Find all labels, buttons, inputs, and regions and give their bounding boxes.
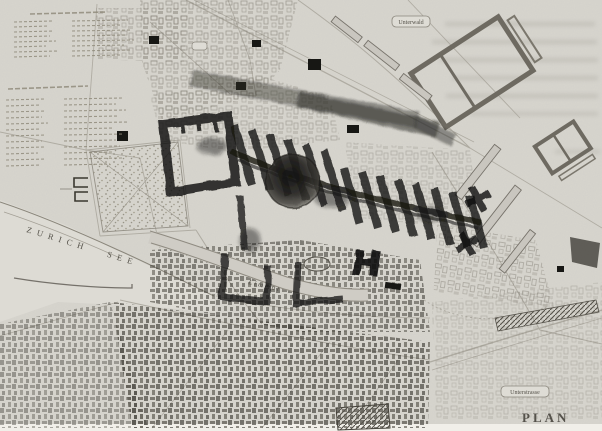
label-box-top-right-text: Unterwald (398, 20, 423, 26)
small-empty-label-box (192, 42, 207, 50)
hatched-palace-building (336, 404, 390, 430)
label-box-bottom-right: Unterstrasse (501, 386, 549, 397)
plan-title: PLAN (522, 410, 569, 425)
label-box-top-right: Unterwald (392, 16, 430, 27)
zurich-plan-map: ZURICH SEE (0, 0, 602, 431)
label-box-bottom-right-text: Unterstrasse (510, 390, 540, 396)
scanned-map-page: ZURICH SEE (0, 0, 602, 431)
